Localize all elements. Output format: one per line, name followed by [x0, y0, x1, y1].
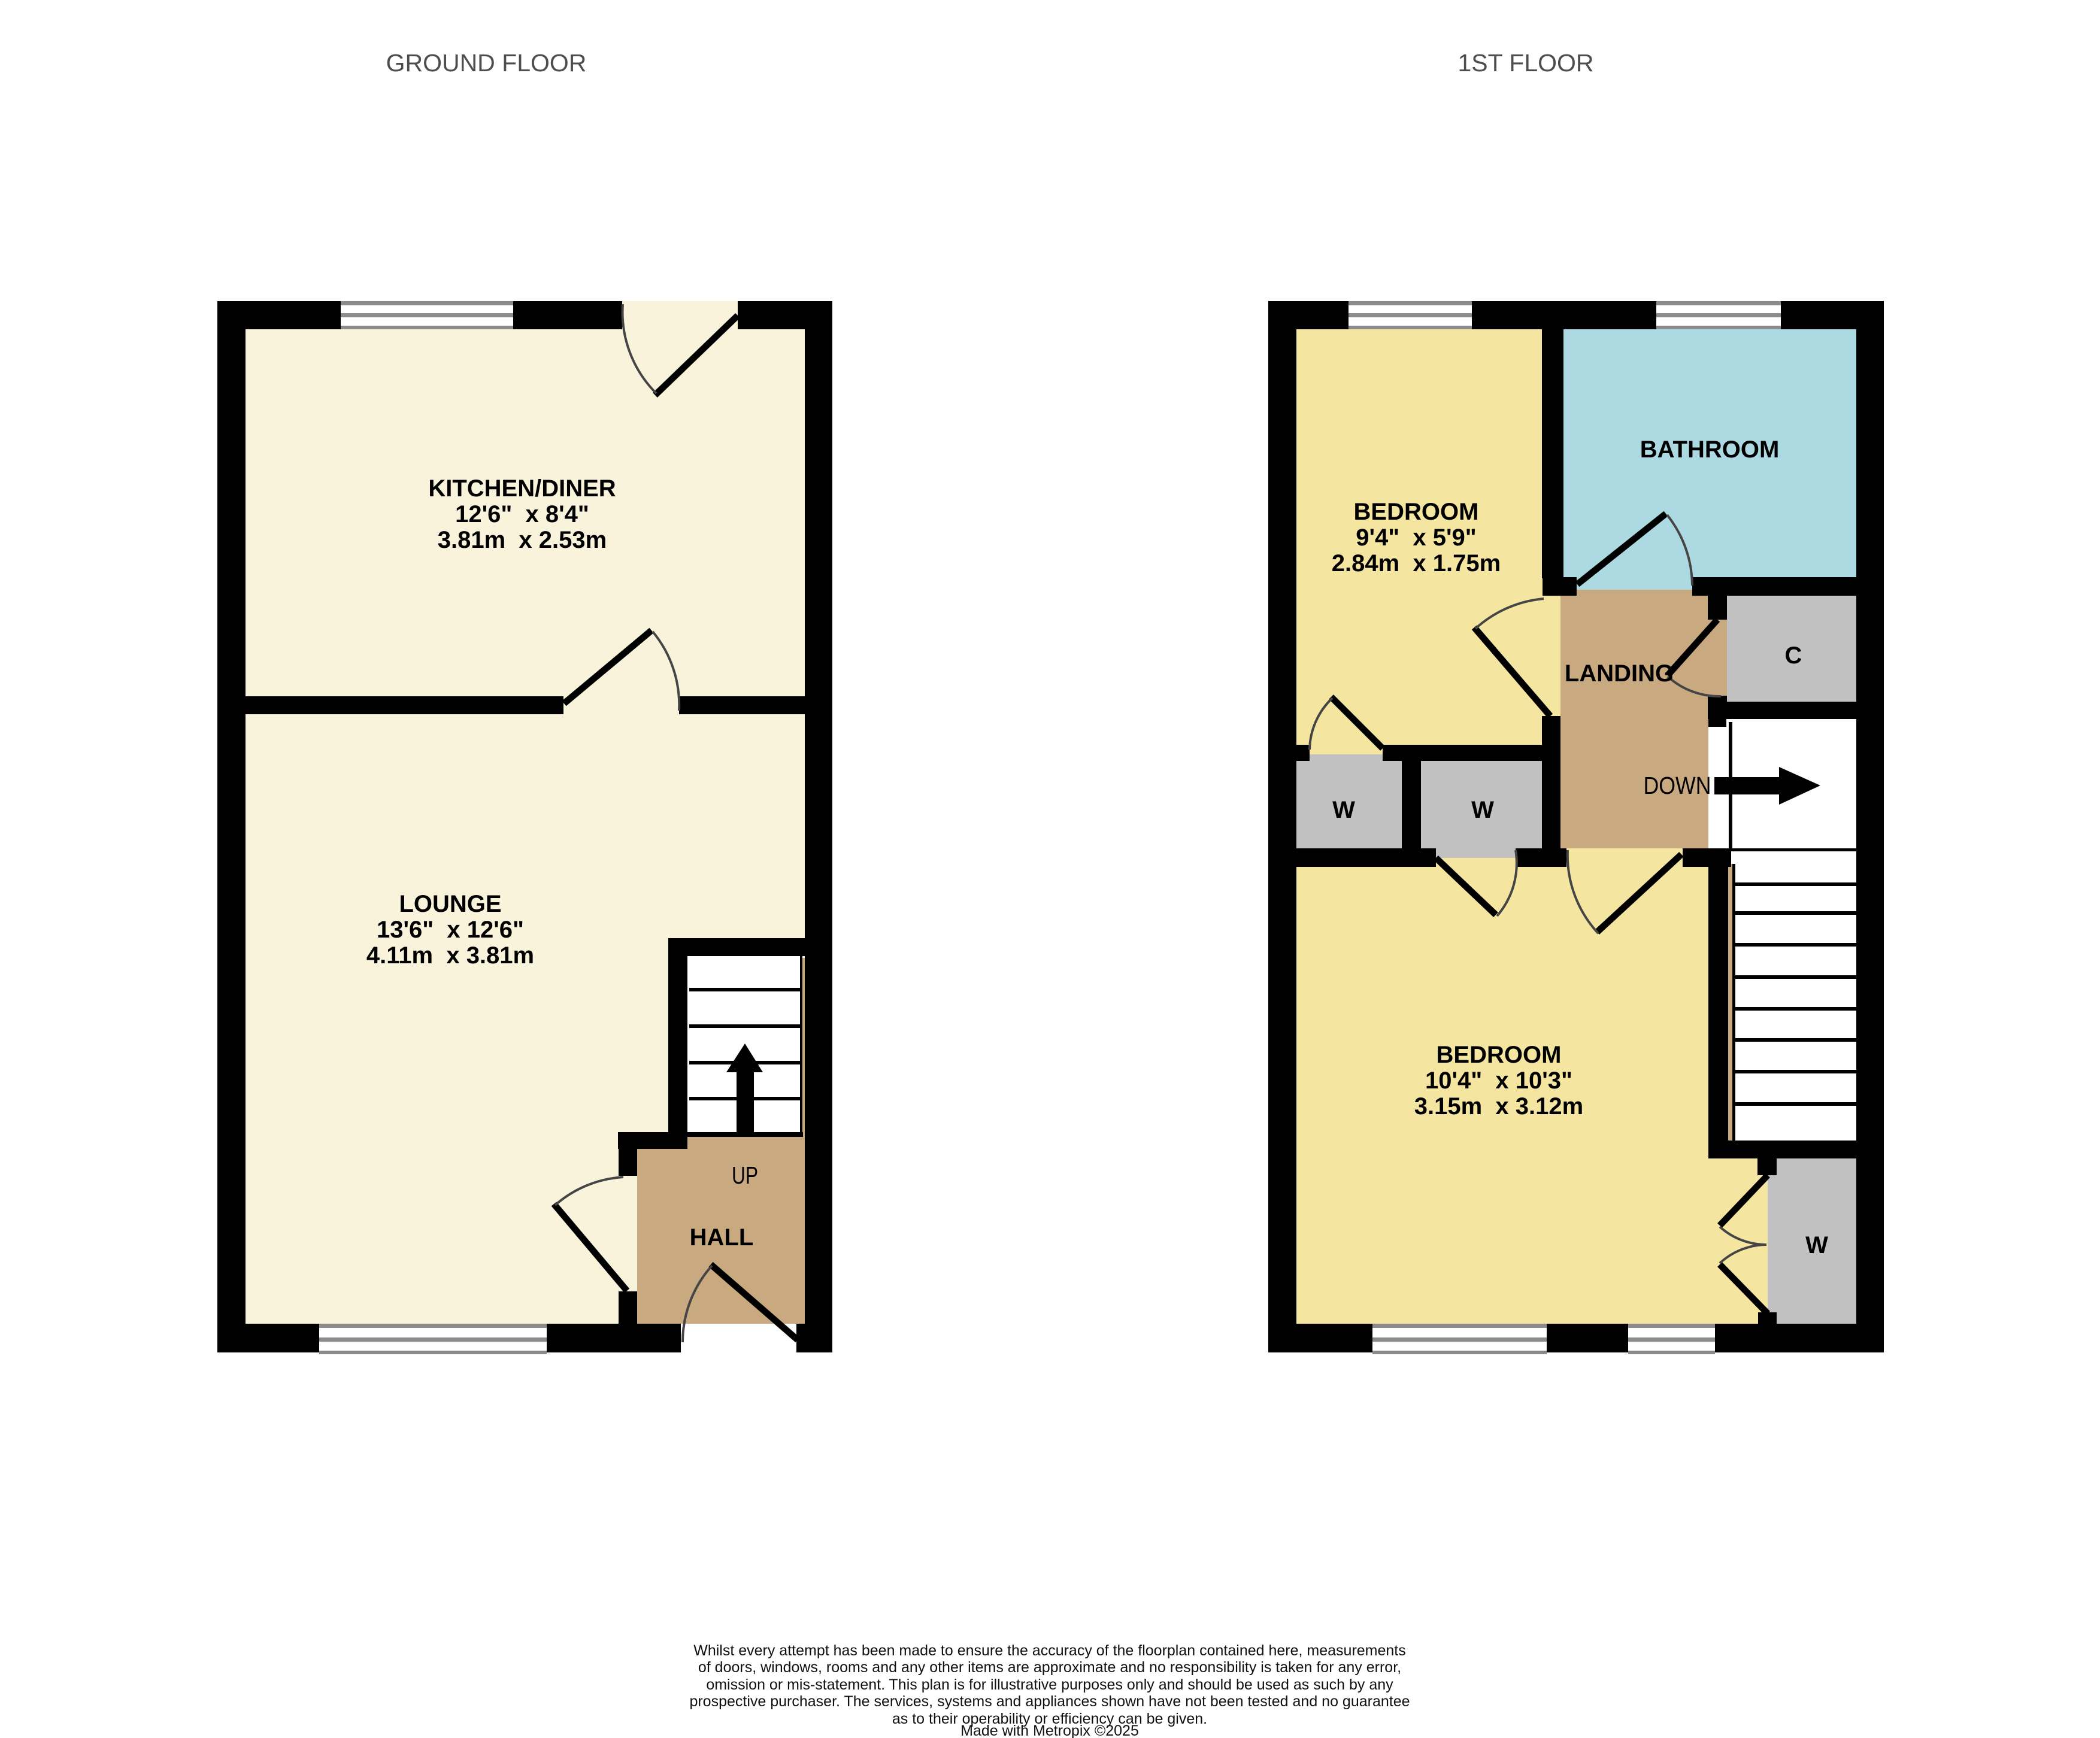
svg-text:10'4" x 10'3": 10'4" x 10'3": [1425, 1067, 1572, 1094]
svg-text:Whilst every attempt has been: Whilst every attempt has been made to en…: [693, 1642, 1406, 1659]
svg-text:Made with Metropix ©2025: Made with Metropix ©2025: [960, 1722, 1139, 1738]
svg-text:12'6" x 8'4": 12'6" x 8'4": [455, 501, 589, 527]
svg-text:LOUNGE: LOUNGE: [399, 891, 501, 917]
svg-text:prospective purchaser. The ser: prospective purchaser. The services, sys…: [689, 1693, 1410, 1710]
svg-text:UP: UP: [732, 1161, 758, 1189]
svg-text:HALL: HALL: [690, 1224, 754, 1251]
svg-text:BEDROOM: BEDROOM: [1354, 499, 1479, 525]
svg-text:W: W: [1805, 1232, 1828, 1258]
svg-text:KITCHEN/DINER: KITCHEN/DINER: [428, 475, 616, 502]
svg-text:DOWN: DOWN: [1644, 772, 1711, 799]
svg-text:3.15m x 3.12m: 3.15m x 3.12m: [1414, 1093, 1583, 1120]
svg-text:4.11m x 3.81m: 4.11m x 3.81m: [366, 942, 534, 969]
svg-text:LANDING: LANDING: [1565, 660, 1674, 687]
svg-text:W: W: [1471, 797, 1494, 823]
svg-text:BEDROOM: BEDROOM: [1437, 1042, 1562, 1068]
svg-text:W: W: [1332, 797, 1355, 823]
svg-text:GROUND FLOOR: GROUND FLOOR: [386, 49, 587, 77]
svg-text:9'4" x 5'9": 9'4" x 5'9": [1356, 524, 1477, 551]
svg-text:BATHROOM: BATHROOM: [1640, 436, 1780, 463]
svg-text:13'6" x 12'6": 13'6" x 12'6": [377, 917, 524, 943]
svg-text:3.81m x 2.53m: 3.81m x 2.53m: [438, 527, 607, 553]
svg-text:of doors, windows, rooms and a: of doors, windows, rooms and any other i…: [698, 1659, 1401, 1676]
svg-text:omission or mis-statement. Thi: omission or mis-statement. This plan is …: [706, 1676, 1393, 1693]
svg-text:2.84m x 1.75m: 2.84m x 1.75m: [1332, 550, 1501, 577]
svg-text:C: C: [1785, 642, 1802, 669]
svg-text:1ST FLOOR: 1ST FLOOR: [1457, 49, 1593, 77]
